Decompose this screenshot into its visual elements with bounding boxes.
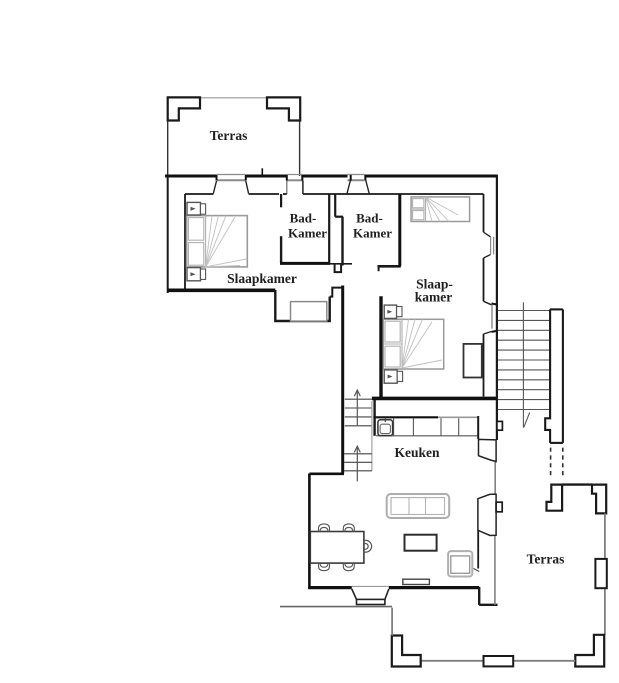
svg-text:Kamer: Kamer (288, 225, 327, 240)
svg-text:Keuken: Keuken (394, 445, 440, 460)
svg-text:Bad-: Bad- (356, 211, 383, 226)
svg-text:Kamer: Kamer (353, 225, 392, 240)
svg-text:Terras: Terras (210, 128, 248, 143)
svg-text:Slaapkamer: Slaapkamer (227, 271, 297, 286)
svg-text:kamer: kamer (415, 290, 453, 305)
svg-text:Bad-: Bad- (290, 211, 317, 226)
svg-text:Terras: Terras (527, 552, 565, 567)
